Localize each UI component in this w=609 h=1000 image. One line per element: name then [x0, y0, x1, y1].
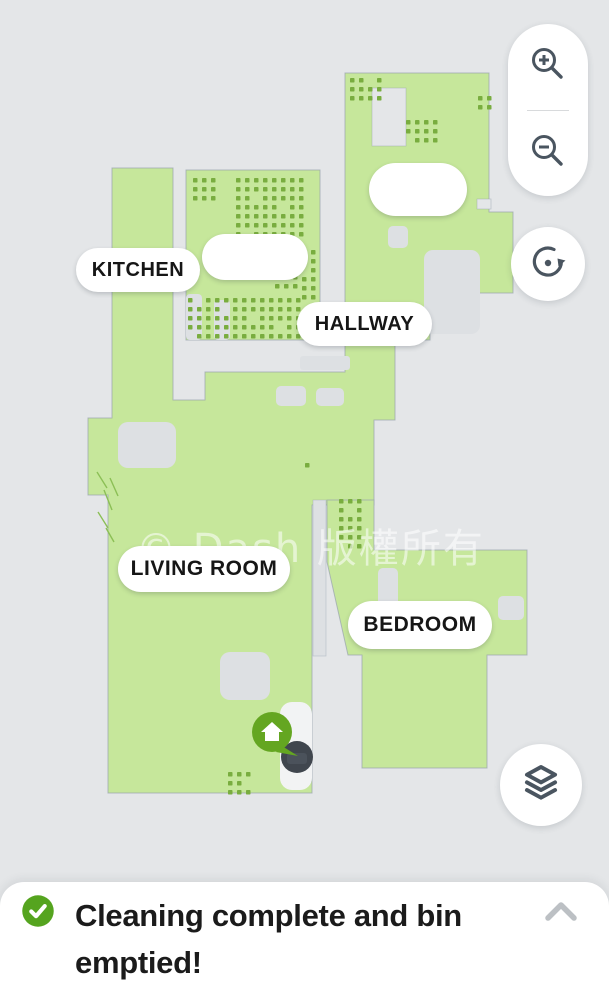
room-label-unnamed-top[interactable] [369, 163, 467, 216]
rotate-map-button[interactable] [511, 227, 585, 301]
obstacle-patch [118, 422, 176, 468]
room-label-bedroom[interactable]: BEDROOM [348, 601, 492, 649]
obstacle-patch [316, 388, 344, 406]
zoom-controls [508, 24, 588, 196]
status-bottom-sheet: Cleaning complete and bin emptied! [0, 882, 609, 1000]
obstacle-patch [388, 226, 408, 248]
zoom-out-icon [527, 130, 569, 177]
check-circle-icon [20, 893, 56, 934]
room-label-living-room[interactable]: LIVING ROOM [118, 546, 290, 592]
room-label-kitchen[interactable]: KITCHEN [76, 248, 200, 292]
zoom-in-button[interactable] [508, 24, 588, 110]
rotate-map-icon [526, 240, 570, 289]
room-label-unnamed-kitchen[interactable] [202, 234, 308, 280]
map-layers-icon [518, 760, 564, 811]
map-notch [477, 199, 491, 209]
status-message: Cleaning complete and bin emptied! [75, 892, 525, 986]
obstacle-patch [220, 652, 270, 700]
obstacle-patch [498, 596, 524, 620]
obstacle-patch [424, 250, 480, 334]
grass-mark [98, 512, 108, 528]
map-layers-button[interactable] [500, 744, 582, 826]
obstacle-patch [276, 386, 306, 406]
zoom-out-button[interactable] [508, 111, 588, 197]
room-label-hallway[interactable]: HALLWAY [297, 302, 432, 346]
chevron-up-icon[interactable] [541, 898, 581, 931]
zoom-in-icon [527, 43, 569, 90]
obstacle-patch [300, 356, 350, 370]
robot-vacuum-map-screen: © Dash 版權所有 KITCHEN HALLWAY LIVING ROOM … [0, 0, 609, 1000]
wall-divider [313, 500, 326, 656]
